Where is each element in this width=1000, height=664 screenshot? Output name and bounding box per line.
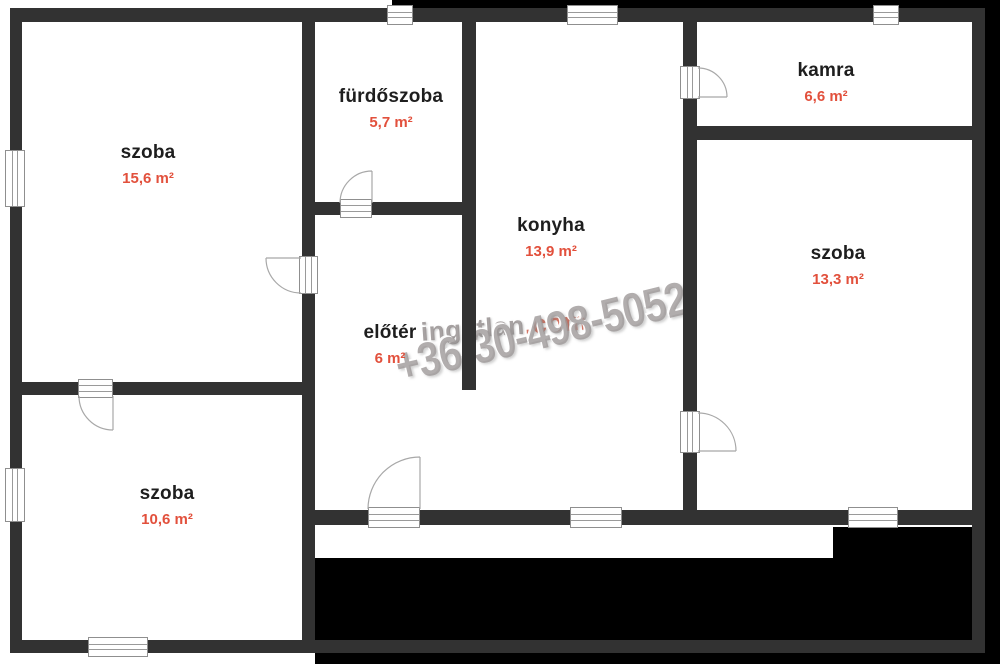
door-arc-room-right	[698, 413, 736, 451]
room-label-furdoszoba: fürdőszoba 5,7 m²	[311, 86, 471, 131]
room-label-szoba-133: szoba 13,3 m²	[768, 243, 908, 288]
room-area: 13,3 m²	[768, 271, 908, 288]
door-arc-room-bottomleft	[79, 396, 113, 430]
room-label-szoba-106: szoba 10,6 m²	[97, 483, 237, 528]
door-arc-bathroom	[340, 171, 372, 203]
room-area: 5,7 m²	[311, 114, 471, 131]
room-area: 6 m²	[320, 350, 460, 367]
room-label-kamra: kamra 6,6 m²	[756, 60, 896, 105]
door-arc-entrance	[368, 457, 420, 509]
room-area: 6,6 m²	[756, 88, 896, 105]
room-name: konyha	[481, 215, 621, 237]
floor-plan: ingatlan.com +36-30-498-5052 szoba	[0, 0, 1000, 664]
room-area: 10,6 m²	[97, 511, 237, 528]
room-name: szoba	[78, 142, 218, 164]
room-label-konyha: konyha 13,9 m²	[481, 215, 621, 260]
room-name: szoba	[97, 483, 237, 505]
door-arc-room-upperleft	[266, 258, 301, 293]
room-name: fürdőszoba	[311, 86, 471, 108]
room-label-szoba-156: szoba 15,6 m²	[78, 142, 218, 187]
room-name: előtér	[320, 322, 460, 344]
room-label-eloter: előtér 6 m²	[320, 322, 460, 367]
room-area: 13,9 m²	[481, 243, 621, 260]
room-name: kamra	[756, 60, 896, 82]
room-area: 15,6 m²	[78, 170, 218, 187]
room-name: szoba	[768, 243, 908, 265]
door-arc-pantry	[698, 68, 727, 97]
